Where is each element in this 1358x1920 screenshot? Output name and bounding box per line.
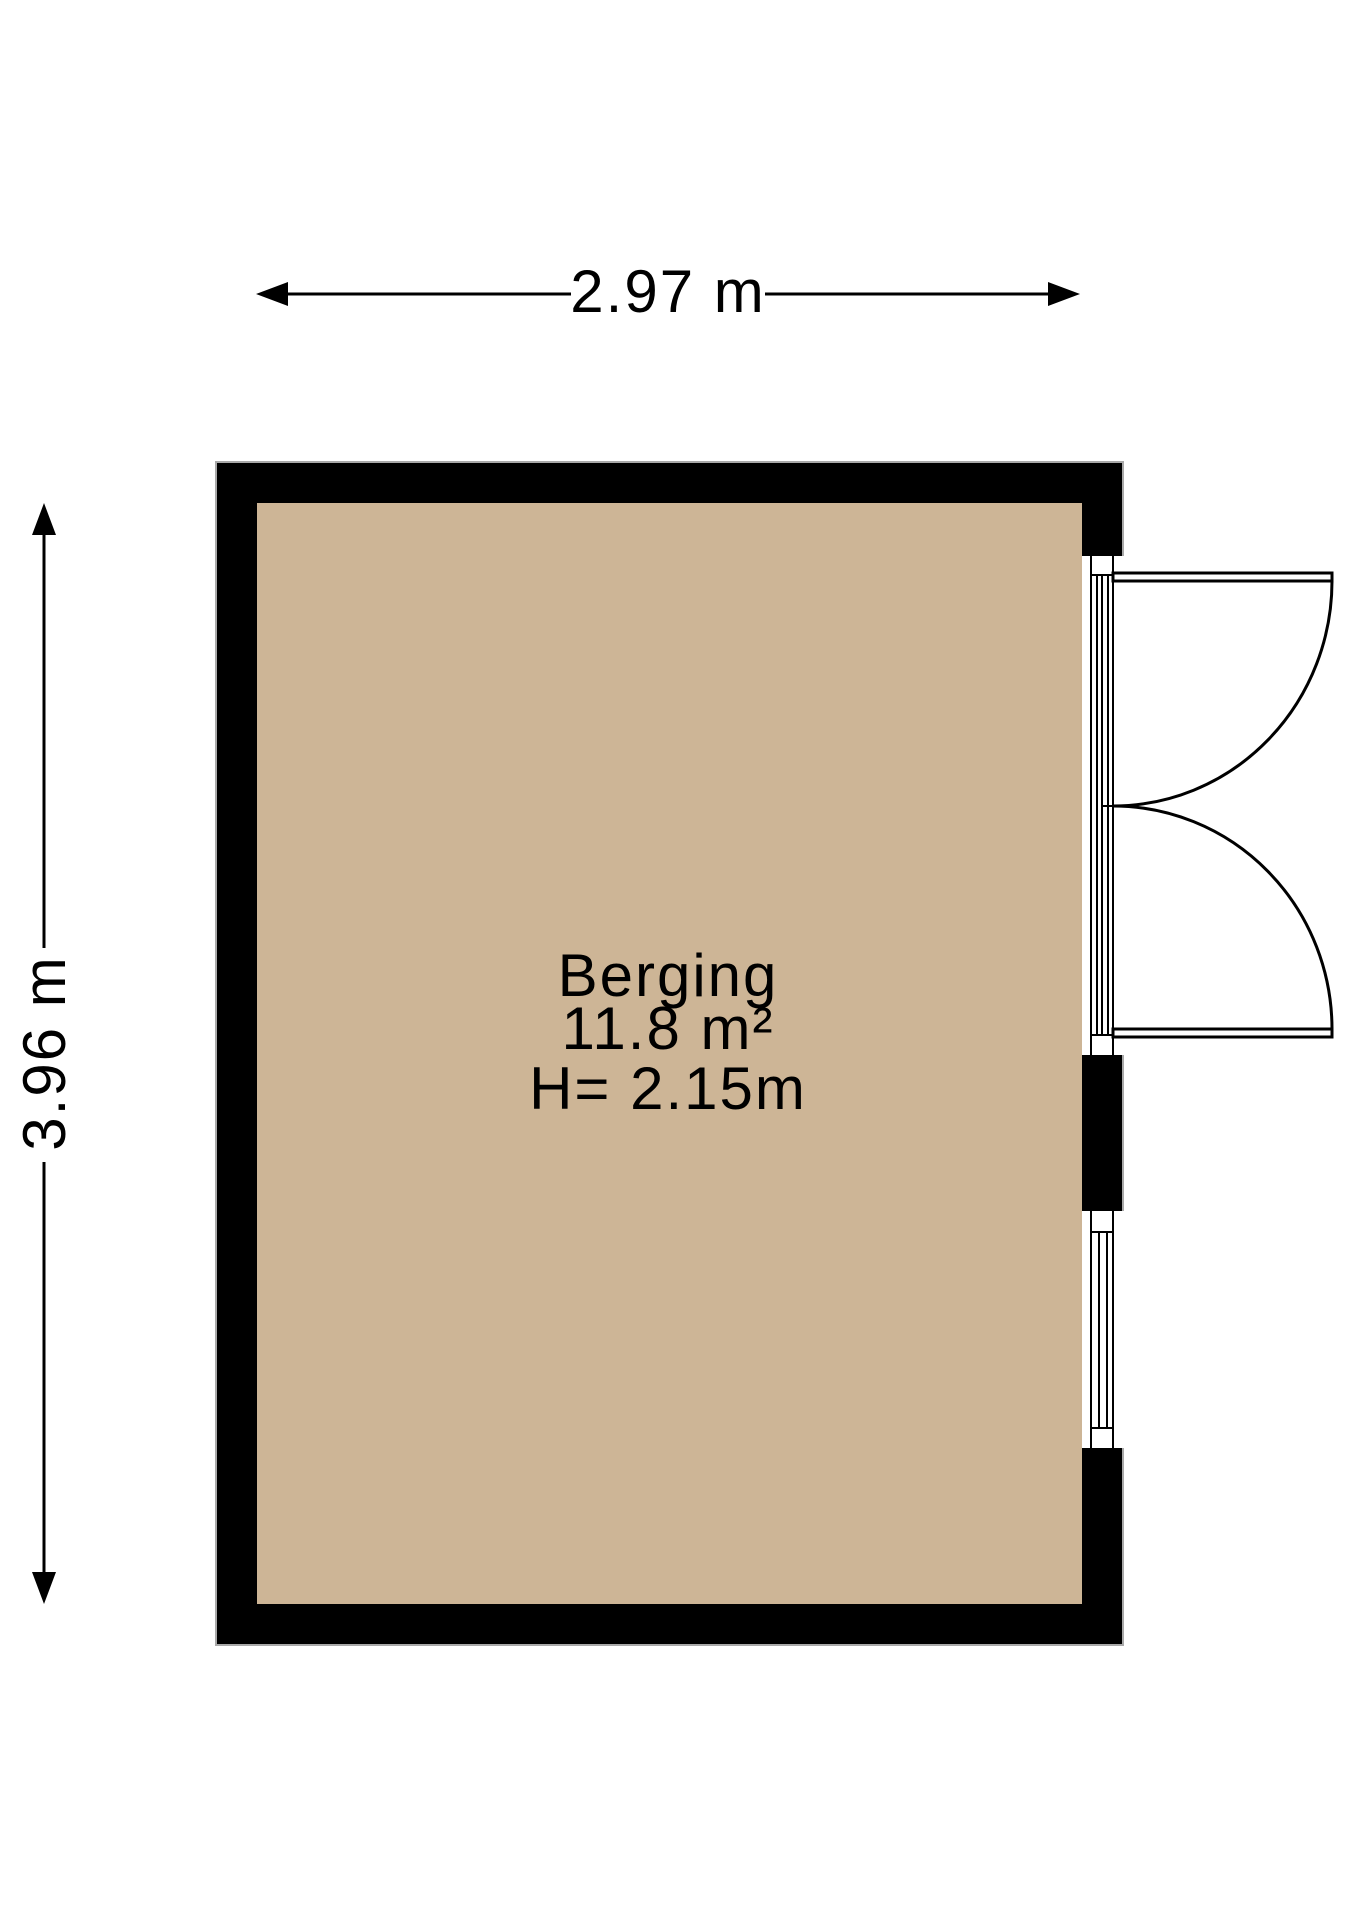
- arrowhead-up-icon: [32, 503, 56, 535]
- door-swing-arc-top: [1113, 581, 1332, 806]
- arrowhead-down-icon: [32, 1572, 56, 1604]
- window-opening-cut: [1082, 1211, 1128, 1448]
- width-dimension: 2.97 m: [256, 258, 1080, 325]
- arrowhead-right-icon: [1048, 282, 1080, 306]
- double-door: [1102, 573, 1332, 1037]
- door-leaf-top: [1113, 573, 1332, 581]
- door-leaf-bottom: [1113, 1029, 1332, 1037]
- width-dimension-label: 2.97 m: [570, 258, 765, 325]
- height-dimension: 3.96 m: [11, 503, 78, 1604]
- height-dimension-label: 3.96 m: [11, 955, 78, 1150]
- floorplan-drawing: 2.97 m 3.96 m Berging 11.8 m² H= 2.15m: [0, 0, 1358, 1920]
- room-ceiling-height: H= 2.15m: [529, 1055, 807, 1122]
- room-label: Berging 11.8 m² H= 2.15m: [529, 942, 807, 1122]
- room-area: 11.8 m²: [562, 995, 775, 1062]
- floorplan-canvas: 2.97 m 3.96 m Berging 11.8 m² H= 2.15m: [0, 0, 1358, 1920]
- door-swing-arc-bottom: [1113, 806, 1332, 1029]
- arrowhead-left-icon: [256, 282, 288, 306]
